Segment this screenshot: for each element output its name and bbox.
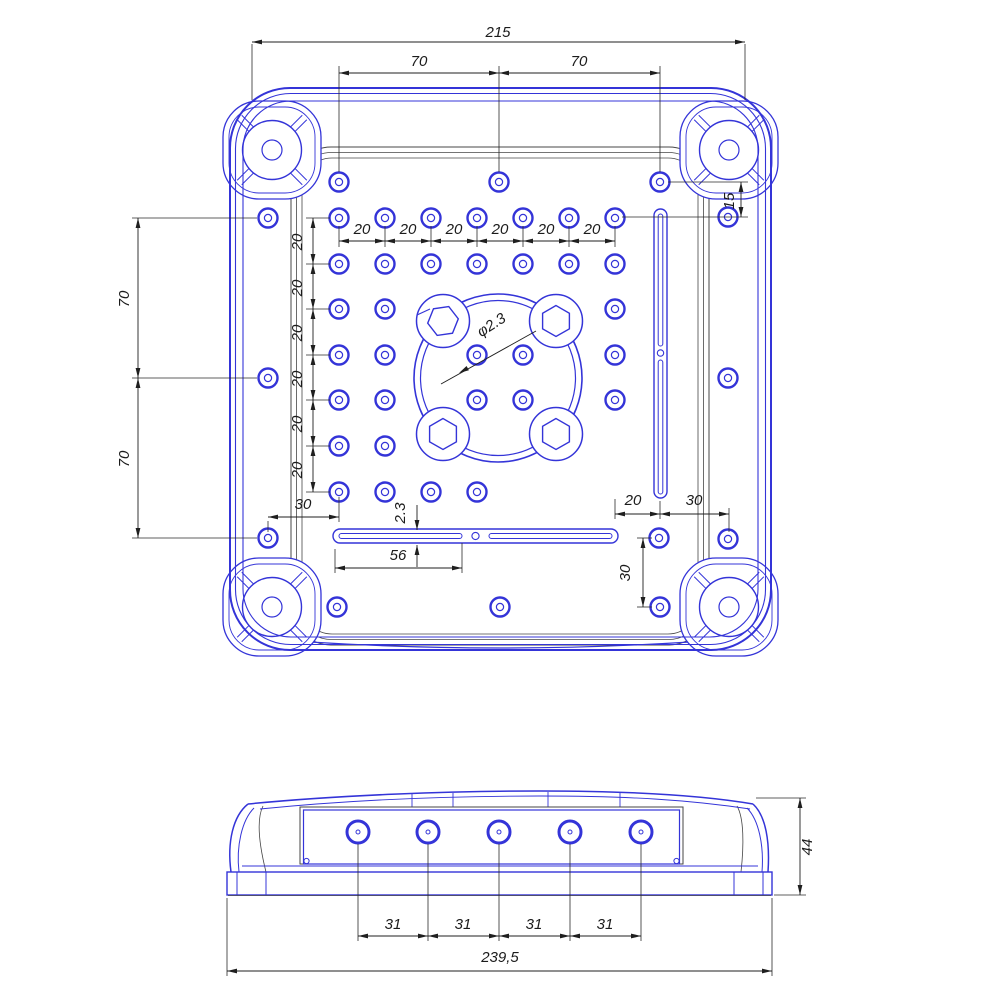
dim-arrow [798, 885, 803, 895]
hole-center [473, 214, 480, 221]
hole-center [519, 214, 526, 221]
hole-center [473, 488, 480, 495]
hole-center [565, 260, 572, 267]
dim-top-pitch-1: 70 [411, 53, 428, 70]
dim-arrow [227, 969, 237, 974]
hole-center [473, 351, 480, 358]
dim-arrow [560, 934, 570, 939]
hole-center [264, 374, 271, 381]
dim-side-pitch-3: 31 [526, 916, 543, 933]
hole-center [473, 260, 480, 267]
dim-arrow [136, 368, 141, 378]
hole-center [611, 260, 618, 267]
hole-center [335, 305, 342, 312]
dim-arrow [735, 40, 745, 45]
dim-row-pitch-4: 20 [289, 370, 306, 388]
dim-arrow [431, 239, 441, 244]
dim-col-pitch-2: 20 [399, 221, 417, 238]
dim-slot-width: 2.3 [392, 502, 409, 525]
dim-arrow [375, 239, 385, 244]
dim-arrow [136, 378, 141, 388]
dim-overall-width-top: 215 [484, 24, 511, 41]
dim-height: 44 [799, 839, 816, 856]
dim-arrow [489, 71, 499, 76]
dim-arrow [136, 218, 141, 228]
hole-center [335, 178, 342, 185]
dim-arrow [499, 71, 509, 76]
hole-center [611, 305, 618, 312]
hole-center [724, 535, 731, 542]
dim-arrow [650, 512, 660, 517]
hole-center [381, 396, 388, 403]
dim-side-pitch-2: 31 [455, 916, 472, 933]
hole-center [655, 534, 662, 541]
dim-arrow [499, 934, 509, 939]
hole-center [611, 214, 618, 221]
dim-arrow [421, 239, 431, 244]
dim-col-pitch-3: 20 [445, 221, 463, 238]
dim-arrow [418, 934, 428, 939]
dim-row-pitch-1: 20 [289, 233, 306, 251]
dim-arrow [311, 390, 316, 400]
vertical-slot-hole [657, 350, 663, 356]
hole-center [519, 396, 526, 403]
dim-slot-length: 56 [390, 547, 407, 564]
dim-arrow [428, 934, 438, 939]
hole-center [519, 260, 526, 267]
dim-top-pitch-2: 70 [571, 53, 588, 70]
hole-center [381, 305, 388, 312]
hex-boss [417, 408, 470, 461]
hole-center [611, 351, 618, 358]
dim-row-pitch-6: 20 [289, 461, 306, 479]
hole-center [565, 214, 572, 221]
hole-center [656, 603, 663, 610]
hole-center [656, 178, 663, 185]
hole-center [335, 351, 342, 358]
hole-center [724, 374, 731, 381]
dim-arrow [641, 597, 646, 607]
dim-row-pitch-3: 20 [289, 324, 306, 342]
dim-col-pitch-5: 20 [537, 221, 555, 238]
hole-center [427, 260, 434, 267]
hole-center [264, 534, 271, 541]
corner-screw-hole [262, 597, 282, 617]
dim-arrow [415, 545, 420, 555]
dim-edge-offset-right: 30 [686, 492, 703, 509]
dim-arrow [559, 239, 569, 244]
dim-arrow [329, 515, 339, 520]
dim-row-pitch-5: 20 [289, 415, 306, 433]
side-hole [417, 821, 439, 843]
hole-center [335, 442, 342, 449]
dim-col-pitch-4: 20 [491, 221, 509, 238]
dim-arrow [762, 969, 772, 974]
dim-arrow [311, 264, 316, 274]
dim-side-pitch-1: 31 [385, 916, 402, 933]
hole-center [381, 488, 388, 495]
bottom-slot-hole [472, 532, 479, 539]
hole-center [335, 260, 342, 267]
hole-center [381, 442, 388, 449]
hex-boss [417, 295, 470, 348]
dim-overall-width-side: 239,5 [480, 949, 519, 966]
hex-boss [530, 295, 583, 348]
dim-edge-offset-left: 30 [295, 496, 312, 513]
hole-center [611, 396, 618, 403]
dim-arrow [311, 482, 316, 492]
dim-arrow [798, 798, 803, 808]
hole-center [427, 214, 434, 221]
corner-screw-hole [719, 597, 739, 617]
dim-arrow [335, 566, 345, 571]
dim-arrow [311, 218, 316, 228]
drawing-canvas: 215 70 70 15 20 20 20 20 20 20 20 20 20 … [0, 0, 1000, 1000]
dim-arrow [615, 512, 625, 517]
dim-arrow [631, 934, 641, 939]
dim-arrow [268, 515, 278, 520]
dim-left-pitch-2: 70 [116, 450, 133, 467]
hole-center [335, 488, 342, 495]
side-hole [488, 821, 510, 843]
side-hole [559, 821, 581, 843]
dim-arrow [311, 355, 316, 365]
dim-arrow [252, 40, 262, 45]
hole-center [381, 260, 388, 267]
enclosure-technical-drawing: 215 70 70 15 20 20 20 20 20 20 20 20 20 … [0, 0, 1000, 1000]
dim-arrow [641, 538, 646, 548]
dim-hole-diameter: φ2.3 [474, 309, 510, 340]
dim-arrow [569, 239, 579, 244]
dim-arrow [489, 934, 499, 939]
dim-side-pitch-4: 31 [597, 916, 614, 933]
dim-arrow [452, 566, 462, 571]
dim-arrow [358, 934, 368, 939]
dim-arrow [719, 512, 729, 517]
hole-center [335, 214, 342, 221]
dim-arrow [311, 299, 316, 309]
dim-arrow [311, 309, 316, 319]
dim-arrow [513, 239, 523, 244]
dim-arrow [739, 207, 744, 217]
hole-center [264, 214, 271, 221]
hole-center [519, 351, 526, 358]
hole-center [381, 214, 388, 221]
dim-col-pitch-6: 20 [583, 221, 601, 238]
hole-center [335, 396, 342, 403]
dim-row-offset: 15 [721, 192, 738, 209]
dim-arrow [467, 239, 477, 244]
dim-row-pitch-2: 20 [289, 279, 306, 297]
hole-center [473, 396, 480, 403]
dim-arrow [459, 366, 469, 373]
side-view-holes [347, 821, 652, 843]
dim-arrow [311, 345, 316, 355]
dim-left-pitch-1: 70 [116, 290, 133, 307]
dim-bottom-offset: 30 [617, 564, 634, 581]
dim-arrow [311, 446, 316, 456]
hole-center [496, 603, 503, 610]
dim-arrow [339, 71, 349, 76]
corner-screw-hole [262, 140, 282, 160]
hex-boss [530, 408, 583, 461]
corner-screw-hole [719, 140, 739, 160]
side-hole [347, 821, 369, 843]
dim-arrow [385, 239, 395, 244]
dim-arrow [650, 71, 660, 76]
hole-center [333, 603, 340, 610]
hole-center [381, 351, 388, 358]
dim-arrow [523, 239, 533, 244]
dim-arrow [660, 512, 670, 517]
dim-col-pitch-1: 20 [353, 221, 371, 238]
side-hole [630, 821, 652, 843]
dim-arrow [605, 239, 615, 244]
dim-slot-offset: 20 [624, 492, 642, 509]
hole-center [495, 178, 502, 185]
dim-arrow [136, 528, 141, 538]
dim-arrow [570, 934, 580, 939]
dim-arrow [339, 239, 349, 244]
dim-arrow [477, 239, 487, 244]
dim-arrow [311, 436, 316, 446]
dim-arrow [311, 254, 316, 264]
dim-arrow [311, 400, 316, 410]
hole-center [427, 488, 434, 495]
